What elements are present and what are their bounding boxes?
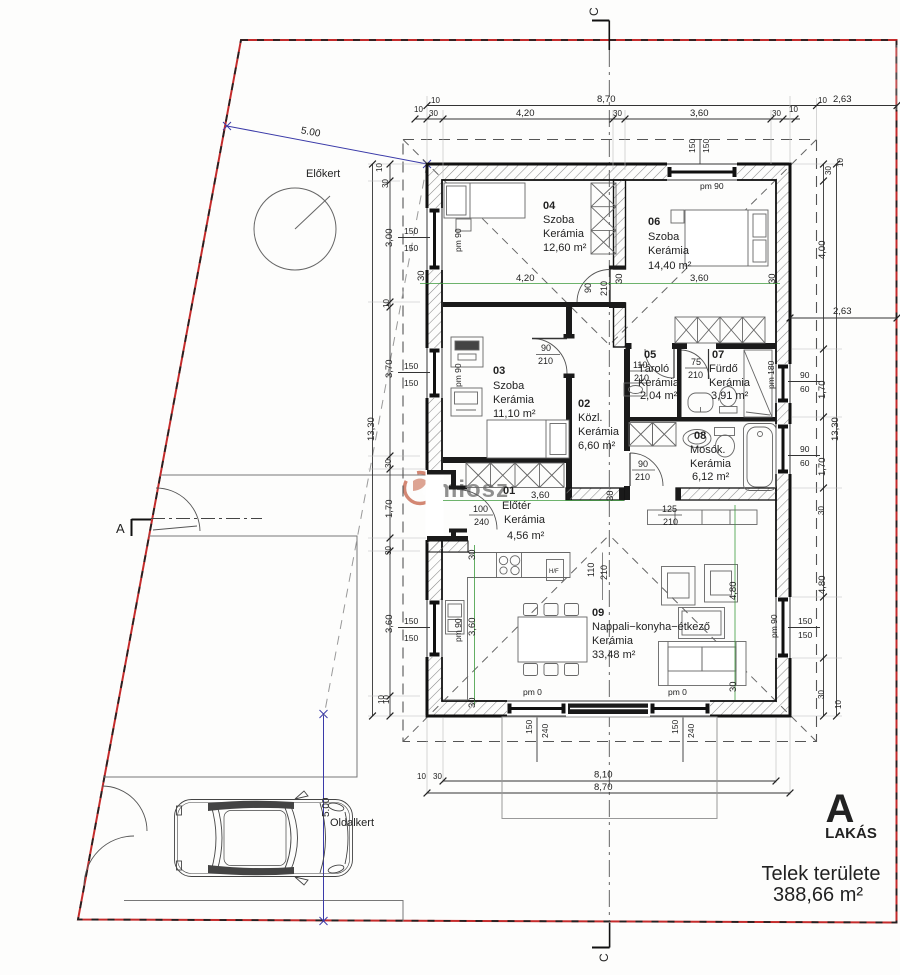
svg-text:150: 150 (404, 243, 418, 253)
svg-text:12,60 m²: 12,60 m² (543, 242, 587, 254)
svg-text:30: 30 (767, 273, 778, 284)
svg-text:10: 10 (417, 772, 426, 781)
svg-text:388,66 m²: 388,66 m² (773, 884, 863, 906)
svg-text:210: 210 (635, 472, 650, 482)
svg-text:150: 150 (687, 139, 697, 153)
svg-text:30: 30 (433, 772, 442, 781)
svg-text:240: 240 (686, 724, 696, 738)
svg-text:210: 210 (688, 370, 703, 380)
svg-text:240: 240 (474, 517, 489, 527)
svg-text:10: 10 (377, 695, 386, 704)
svg-text:8,70: 8,70 (597, 94, 616, 105)
svg-text:03: 03 (493, 365, 505, 377)
svg-text:Kerámia: Kerámia (592, 635, 634, 647)
svg-text:pm 0: pm 0 (523, 687, 542, 697)
svg-text:C: C (597, 953, 611, 962)
svg-text:pm 90: pm 90 (453, 618, 463, 642)
svg-text:30: 30 (613, 109, 622, 118)
svg-text:Kerámia: Kerámia (709, 377, 751, 389)
svg-text:4,00: 4,00 (817, 241, 828, 260)
svg-text:10: 10 (818, 96, 827, 105)
svg-text:pm 90: pm 90 (700, 181, 724, 191)
svg-text:30: 30 (467, 549, 478, 560)
svg-text:150: 150 (404, 378, 418, 388)
svg-text:2,04 m²: 2,04 m² (640, 390, 678, 402)
svg-text:150: 150 (404, 361, 418, 371)
svg-text:2,63: 2,63 (833, 94, 852, 105)
svg-text:Fürdő: Fürdő (709, 363, 738, 375)
svg-text:1,70: 1,70 (817, 381, 828, 400)
svg-text:150: 150 (670, 720, 680, 734)
svg-text:11,10 m²: 11,10 m² (493, 408, 536, 420)
svg-text:01: 01 (503, 485, 515, 497)
svg-text:210: 210 (663, 517, 678, 527)
svg-text:6,12 m²: 6,12 m² (692, 471, 730, 483)
svg-text:90: 90 (638, 459, 648, 469)
svg-text:60: 60 (800, 458, 810, 468)
svg-text:C: C (587, 7, 601, 16)
svg-text:90: 90 (541, 343, 551, 353)
svg-text:3,70: 3,70 (384, 360, 395, 379)
svg-text:07: 07 (712, 349, 724, 361)
svg-text:13,30: 13,30 (830, 417, 841, 441)
svg-text:1,70: 1,70 (817, 458, 828, 477)
svg-text:Kerámia: Kerámia (504, 514, 546, 526)
svg-text:110: 110 (586, 563, 596, 577)
svg-text:pm 0: pm 0 (668, 687, 687, 697)
svg-text:06: 06 (648, 216, 660, 228)
svg-text:150: 150 (404, 616, 418, 626)
svg-text:Kerámia: Kerámia (578, 426, 620, 438)
svg-text:10: 10 (836, 158, 845, 167)
svg-text:30: 30 (384, 459, 393, 468)
svg-text:33,48 m²: 33,48 m² (592, 649, 636, 661)
svg-text:14,40 m²: 14,40 m² (648, 260, 692, 272)
svg-text:Oldalkert: Oldalkert (330, 817, 374, 829)
svg-text:210: 210 (599, 565, 609, 580)
svg-text:3,00: 3,00 (384, 229, 395, 248)
svg-text:4,80: 4,80 (817, 576, 828, 595)
svg-text:Közl.: Közl. (578, 412, 602, 424)
svg-text:240: 240 (540, 724, 550, 738)
svg-text:3,60: 3,60 (384, 615, 395, 634)
svg-text:Kerámia: Kerámia (543, 228, 585, 240)
svg-text:75: 75 (691, 357, 701, 367)
svg-text:Mosók.: Mosók. (690, 444, 725, 456)
svg-text:09: 09 (592, 607, 604, 619)
svg-text:30: 30 (381, 179, 390, 188)
svg-text:210: 210 (599, 281, 609, 296)
svg-text:90: 90 (583, 283, 593, 293)
svg-text:H/F: H/F (549, 569, 559, 575)
svg-text:10: 10 (375, 163, 384, 172)
svg-text:8,70: 8,70 (594, 782, 613, 793)
svg-text:pm 90: pm 90 (453, 228, 463, 252)
svg-text:30: 30 (772, 109, 781, 118)
svg-text:Telek területe: Telek területe (762, 863, 881, 885)
svg-text:1,70: 1,70 (384, 500, 395, 519)
svg-text:3,60: 3,60 (690, 273, 709, 284)
svg-text:6,60 m²: 6,60 m² (578, 440, 616, 452)
svg-text:LAKÁS: LAKÁS (825, 825, 877, 842)
svg-text:pm 180: pm 180 (766, 360, 776, 389)
svg-text:10: 10 (834, 700, 843, 709)
svg-text:Kerámia: Kerámia (493, 394, 535, 406)
svg-text:3,60: 3,60 (690, 108, 709, 119)
svg-text:30: 30 (817, 690, 826, 699)
svg-text:150: 150 (701, 139, 711, 153)
svg-text:30: 30 (817, 506, 826, 515)
svg-text:3,91 m²: 3,91 m² (711, 390, 749, 402)
svg-text:4,20: 4,20 (516, 108, 535, 119)
svg-text:10: 10 (414, 105, 423, 114)
svg-text:pm 90: pm 90 (769, 614, 779, 638)
svg-text:210: 210 (634, 373, 649, 383)
svg-text:30: 30 (728, 681, 739, 692)
svg-text:Előkert: Előkert (306, 168, 340, 180)
svg-text:10: 10 (382, 299, 391, 308)
svg-text:04: 04 (543, 200, 556, 212)
svg-text:150: 150 (798, 630, 812, 640)
svg-text:Nappali−konyha−étkező: Nappali−konyha−étkező (592, 621, 710, 633)
svg-text:Kerámia: Kerámia (648, 245, 690, 257)
svg-text:125: 125 (662, 504, 677, 514)
svg-text:4,20: 4,20 (516, 273, 535, 284)
svg-text:A: A (116, 521, 125, 536)
svg-text:10: 10 (789, 105, 798, 114)
svg-text:8,10: 8,10 (594, 770, 613, 781)
svg-text:Kerámia: Kerámia (690, 458, 732, 470)
svg-text:30: 30 (416, 270, 427, 281)
svg-text:60: 60 (800, 384, 810, 394)
svg-text:30: 30 (429, 109, 438, 118)
svg-text:30: 30 (824, 166, 833, 175)
svg-text:30: 30 (384, 546, 393, 555)
svg-text:150: 150 (404, 226, 418, 236)
svg-text:Előtér: Előtér (502, 500, 531, 512)
svg-text:150: 150 (798, 616, 812, 626)
svg-text:30: 30 (467, 697, 478, 708)
svg-text:4,56 m²: 4,56 m² (507, 530, 545, 542)
svg-text:100: 100 (473, 504, 488, 514)
svg-text:02: 02 (578, 398, 590, 410)
svg-text:08: 08 (694, 430, 706, 442)
svg-text:Szoba: Szoba (493, 380, 525, 392)
svg-text:150: 150 (404, 633, 418, 643)
svg-text:2,63: 2,63 (833, 306, 852, 317)
svg-text:Szoba: Szoba (543, 214, 575, 226)
svg-text:4,80: 4,80 (728, 582, 739, 601)
svg-text:150: 150 (524, 720, 534, 734)
svg-text:Szoba: Szoba (648, 231, 680, 243)
svg-text:90: 90 (800, 444, 810, 454)
svg-text:13,30: 13,30 (366, 417, 377, 441)
svg-text:110: 110 (633, 360, 647, 370)
svg-text:30: 30 (605, 490, 616, 501)
svg-text:pm 90: pm 90 (453, 363, 463, 387)
svg-text:3,60: 3,60 (467, 618, 478, 637)
svg-text:3,60: 3,60 (531, 490, 550, 501)
svg-text:30: 30 (614, 273, 625, 284)
svg-text:10: 10 (431, 96, 440, 105)
svg-text:90: 90 (800, 370, 810, 380)
svg-text:210: 210 (538, 356, 553, 366)
